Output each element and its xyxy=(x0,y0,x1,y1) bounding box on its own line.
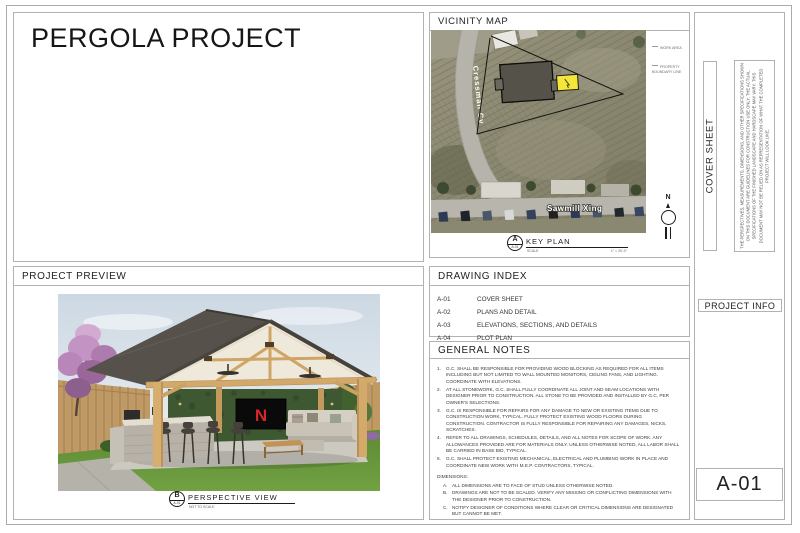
vicinity-map-section: VICINITY MAP xyxy=(429,12,690,258)
dimension-note-item: A.ALL DIMENSIONS ARE TO FACE OF STUD UNL… xyxy=(443,483,680,489)
index-row: A-03ELEVATIONS, SECTIONS, AND DETAILS xyxy=(437,319,689,332)
keyplan-label: KEY PLAN xyxy=(526,237,628,248)
cover-sheet-page: PERGOLA PROJECT PROJECT PREVIEW xyxy=(0,0,800,533)
keyplan-detail-marker: A A-01 xyxy=(507,235,523,251)
wall-light xyxy=(179,403,182,406)
scale-bar-icon xyxy=(656,227,680,239)
tv-screen: N xyxy=(236,399,286,429)
leader-line xyxy=(652,46,658,47)
work-area-annotation: WORK AREA xyxy=(652,46,688,51)
north-compass: N xyxy=(656,194,680,239)
note-item: 3.G.C. IS RESPONSIBLE FOR REPAIRS FOR AN… xyxy=(437,408,680,433)
pergola-render: N xyxy=(58,294,380,491)
tv-logo-letter: N xyxy=(255,406,267,425)
dimension-note-item: C.NOTIFY DESIGNER OF CONDITIONS WHERE CL… xyxy=(443,505,680,518)
sheet-number-box: A-01 xyxy=(696,468,783,501)
perspective-callout: B A-01 PERSPECTIVE VIEW NOT TO SCALE xyxy=(169,491,295,509)
sheet-number: A-01 xyxy=(716,473,762,496)
perspective-scale: NOT TO SCALE xyxy=(189,505,214,509)
existing-building xyxy=(494,61,561,103)
wall-light xyxy=(331,403,334,406)
drawing-index-header: DRAWING INDEX xyxy=(430,267,689,286)
street-label-sawmill: Sawmill Xing xyxy=(547,204,602,213)
keyplan-callout: A A-01 KEY PLAN SCALE 1" = 20'-0" xyxy=(507,235,628,253)
aerial-map: Cressman Cv xyxy=(431,30,646,233)
project-preview-section: PROJECT PREVIEW xyxy=(13,266,424,520)
disclaimer-text: THE PERSPECTIVES, MEASUREMENTS, DIMENSIO… xyxy=(739,63,770,249)
perspective-view-label: PERSPECTIVE VIEW xyxy=(188,493,295,504)
project-info-box: PROJECT INFO xyxy=(698,299,782,312)
boundary-annotation: PROPERTY BOUNDARY LINE xyxy=(652,65,686,74)
index-row: A-01COVER SHEET xyxy=(437,293,689,306)
dimension-note-item: B.DRAWINGS ARE NOT TO BE SCALED. VERIFY … xyxy=(443,490,680,503)
work-area-marker xyxy=(557,74,579,90)
project-info-label: PROJECT INFO xyxy=(705,301,776,311)
keyplan-scale-label: SCALE xyxy=(527,249,538,253)
note-item: 4.REFER TO ALL DRAWINGS, SCHEDULES, DETA… xyxy=(437,435,680,454)
north-label: N xyxy=(656,194,680,202)
note-item: 2.AT ALL STONEWORK, G.C. SHALL FULLY COO… xyxy=(437,387,680,406)
drawing-index-section: DRAWING INDEX A-01COVER SHEET A-02PLANS … xyxy=(429,266,690,337)
title-block: PERGOLA PROJECT xyxy=(13,12,424,262)
compass-ring-icon xyxy=(661,210,676,225)
sheet-title-vertical: COVER SHEET xyxy=(705,119,716,194)
dimensions-header: DIMENSIONS: xyxy=(437,474,680,480)
leader-line xyxy=(652,65,658,66)
project-preview-header: PROJECT PREVIEW xyxy=(14,267,423,286)
perspective-detail-marker: B A-01 xyxy=(169,491,185,507)
vicinity-map-header: VICINITY MAP xyxy=(430,13,689,31)
note-item: 1.G.C. SHALL BE RESPONSIBLE FOR PROVIDIN… xyxy=(437,366,680,385)
index-row: A-02PLANS AND DETAIL xyxy=(437,306,689,319)
general-notes-section: GENERAL NOTES 1.G.C. SHALL BE RESPONSIBL… xyxy=(429,341,690,520)
general-notes-header: GENERAL NOTES xyxy=(430,342,689,359)
note-item: 5.G.C. SHALL PROTECT EXISTING MECHANICAL… xyxy=(437,456,680,469)
disclaimer-box: THE PERSPECTIVES, MEASUREMENTS, DIMENSIO… xyxy=(734,60,775,252)
keyplan-scale-value: 1" = 20'-0" xyxy=(611,249,627,253)
page-title: PERGOLA PROJECT xyxy=(31,23,301,54)
sheet-title-vertical-box: COVER SHEET xyxy=(703,61,717,251)
north-arrow-icon xyxy=(666,203,670,208)
